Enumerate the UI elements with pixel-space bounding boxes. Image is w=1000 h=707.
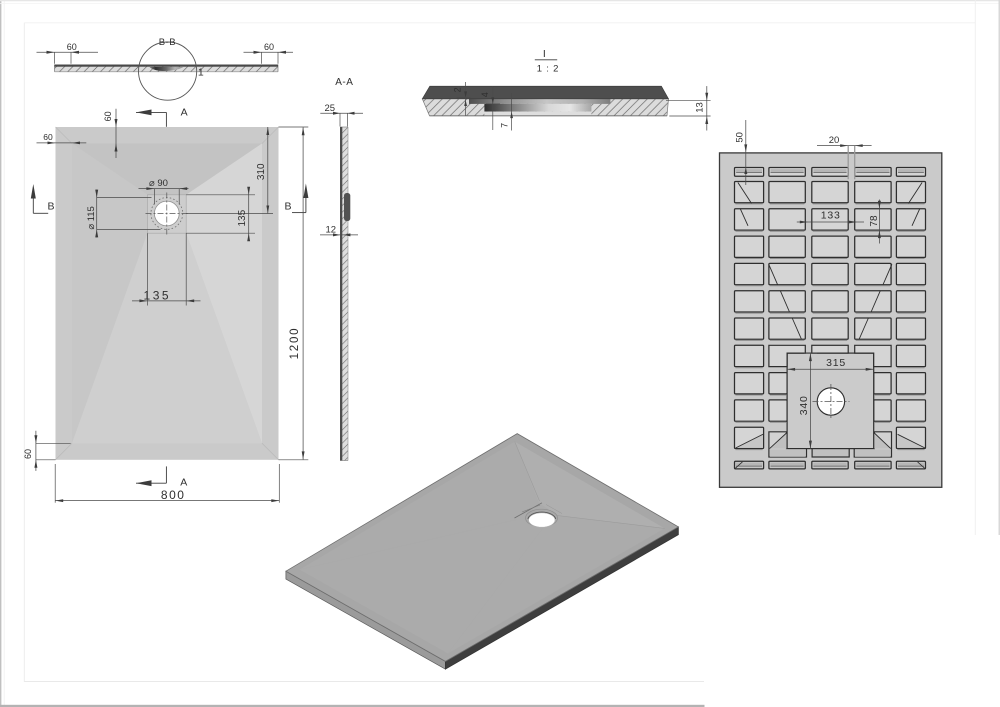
svg-text:A-A: A-A bbox=[335, 77, 353, 88]
svg-text:⌀ 90: ⌀ 90 bbox=[149, 178, 168, 189]
svg-text:310: 310 bbox=[256, 163, 267, 180]
svg-text:60: 60 bbox=[43, 132, 53, 142]
svg-text:4: 4 bbox=[480, 92, 490, 97]
svg-text:60: 60 bbox=[103, 111, 113, 121]
svg-text:13: 13 bbox=[695, 102, 706, 113]
svg-text:A: A bbox=[181, 107, 188, 119]
svg-text:340: 340 bbox=[798, 395, 810, 415]
svg-text:1: 1 bbox=[198, 67, 204, 79]
svg-text:60: 60 bbox=[264, 42, 274, 52]
svg-text:⌀ 115: ⌀ 115 bbox=[86, 206, 97, 230]
svg-text:1200: 1200 bbox=[289, 327, 301, 360]
svg-text:B-B: B-B bbox=[159, 37, 176, 48]
svg-text:50: 50 bbox=[735, 132, 746, 143]
svg-text:20: 20 bbox=[829, 135, 840, 146]
svg-text:135: 135 bbox=[144, 288, 172, 302]
svg-text:1 : 2: 1 : 2 bbox=[537, 64, 560, 75]
svg-text:315: 315 bbox=[826, 357, 846, 369]
svg-text:7: 7 bbox=[500, 123, 510, 128]
svg-text:25: 25 bbox=[325, 103, 336, 114]
svg-text:133: 133 bbox=[821, 210, 841, 222]
svg-text:A: A bbox=[180, 476, 187, 488]
svg-text:12: 12 bbox=[326, 224, 337, 235]
svg-text:60: 60 bbox=[23, 449, 33, 459]
svg-text:B: B bbox=[284, 200, 291, 212]
svg-text:800: 800 bbox=[161, 488, 186, 502]
svg-text:2: 2 bbox=[452, 87, 462, 92]
svg-text:I: I bbox=[543, 48, 546, 60]
svg-text:135: 135 bbox=[237, 209, 248, 226]
svg-text:60: 60 bbox=[67, 42, 77, 52]
svg-text:B: B bbox=[47, 201, 54, 213]
svg-text:78: 78 bbox=[869, 215, 880, 227]
